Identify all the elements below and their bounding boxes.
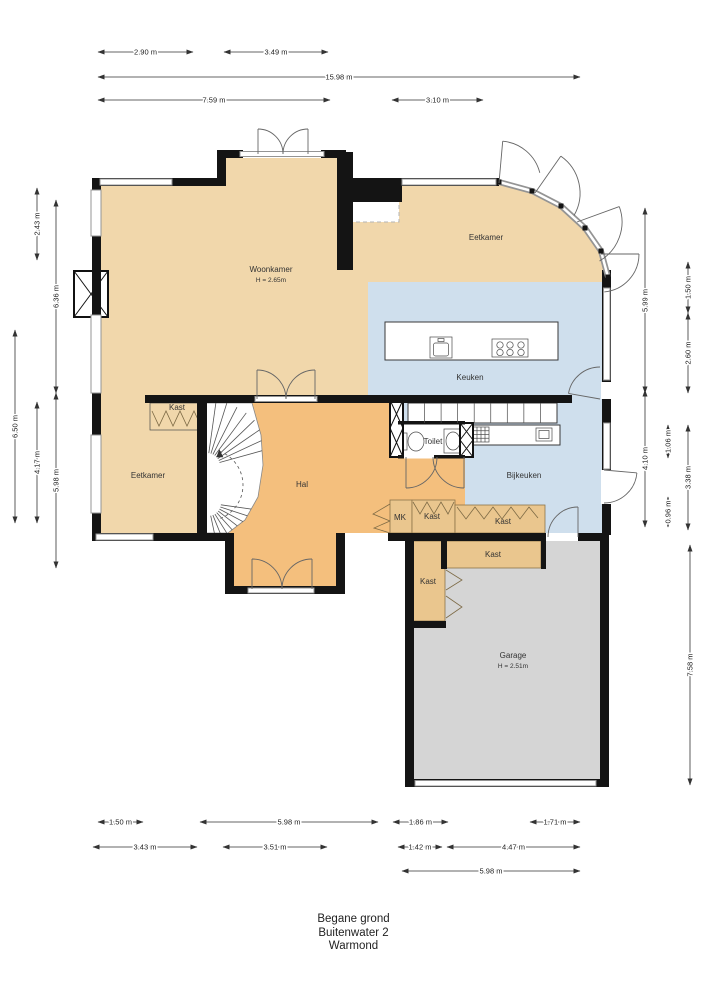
dim-right-1: 4.10 m — [641, 390, 650, 527]
room-label-kast-bijkeuken: Kast — [495, 517, 512, 526]
svg-text:7.58 m: 7.58 m — [686, 654, 695, 677]
svg-text:5.98 m: 5.98 m — [52, 469, 61, 492]
dim-bottom-0: 1.50 m — [98, 818, 143, 827]
room-label-eetkamer-boven: Eetkamer — [469, 233, 504, 242]
dim-bottom-1: 5.98 m — [200, 818, 378, 827]
svg-text:Garage: Garage — [500, 651, 527, 660]
duct-left — [390, 400, 403, 457]
dim-bottom-6: 1.42 m — [398, 843, 442, 852]
dim-bottom-4: 3.43 m — [93, 843, 197, 852]
room-label-kast-eetkamer: Kast — [169, 403, 186, 412]
dim-right-0: 5.99 m — [641, 208, 650, 393]
svg-text:3.43 m: 3.43 m — [134, 843, 157, 852]
dim-right-3: 0.96 m — [664, 497, 673, 527]
dim-bottom-7: 4.47 m — [447, 843, 580, 852]
dim-right-4: 1.50 m — [684, 262, 693, 313]
dim-left-4: 5.98 m — [52, 393, 61, 568]
room-label-toilet: Toilet — [424, 437, 443, 446]
svg-text:H = 2.51m: H = 2.51m — [498, 663, 528, 670]
dim-top-4: 3.10 m — [392, 96, 483, 105]
door-arc-11 — [499, 141, 540, 183]
svg-text:1.50 m: 1.50 m — [684, 276, 693, 299]
room-label-kast-garage-hoog: Kast — [420, 577, 437, 586]
niche-dashed — [347, 201, 399, 222]
dim-top-2: 15.98 m — [98, 73, 580, 82]
svg-text:Toilet: Toilet — [424, 437, 443, 446]
dim-left-2: 6.50 m — [11, 330, 20, 523]
svg-text:1.71 m: 1.71 m — [544, 818, 567, 827]
dim-left-1: 6.36 m — [52, 200, 61, 393]
title-city: Warmond — [0, 940, 707, 954]
svg-text:2.43 m: 2.43 m — [33, 213, 42, 236]
svg-text:2.90 m: 2.90 m — [134, 48, 157, 57]
dim-right-2: 1.06 m — [664, 425, 673, 458]
svg-text:4.47 m: 4.47 m — [502, 843, 525, 852]
door-arc-1 — [283, 129, 308, 154]
dim-top-0: 2.90 m — [98, 48, 193, 57]
svg-text:Kast: Kast — [485, 550, 502, 559]
svg-text:2.60 m: 2.60 m — [684, 342, 693, 365]
dim-bottom-8: 5.98 m — [402, 867, 580, 876]
svg-text:6.50 m: 6.50 m — [11, 415, 20, 438]
room-label-kast-hal: Kast — [424, 512, 441, 521]
svg-text:Keuken: Keuken — [456, 373, 483, 382]
svg-text:1.50 m: 1.50 m — [109, 818, 132, 827]
floorplan-canvas: 2.90 m3.49 m15.98 m7.59 m3.10 m1.50 m5.9… — [0, 0, 707, 1000]
room-label-kast-garage-breed: Kast — [485, 550, 502, 559]
dim-bottom-2: 1.86 m — [393, 818, 448, 827]
dim-left-3: 4.17 m — [33, 402, 42, 523]
room-label-keuken: Keuken — [456, 373, 483, 382]
svg-text:6.36 m: 6.36 m — [52, 285, 61, 308]
svg-text:Kast: Kast — [169, 403, 186, 412]
svg-text:0.96 m: 0.96 m — [664, 501, 673, 524]
title-block: Begane grond Buitenwater 2 Warmond — [0, 913, 707, 954]
svg-text:3.10 m: 3.10 m — [426, 96, 449, 105]
svg-text:1.86 m: 1.86 m — [409, 818, 432, 827]
svg-text:Hal: Hal — [296, 480, 308, 489]
room-label-bijkeuken: Bijkeuken — [507, 471, 542, 480]
svg-text:Bijkeuken: Bijkeuken — [507, 471, 542, 480]
svg-text:4.10 m: 4.10 m — [641, 447, 650, 470]
title-floor: Begane grond — [0, 913, 707, 927]
svg-text:15.98 m: 15.98 m — [325, 73, 352, 82]
svg-text:H = 2.65m: H = 2.65m — [256, 277, 286, 284]
door-arc-0 — [258, 129, 283, 154]
svg-text:5.99 m: 5.99 m — [641, 289, 650, 312]
svg-text:Kast: Kast — [424, 512, 441, 521]
svg-text:1.42 m: 1.42 m — [409, 843, 432, 852]
dim-left-0: 2.43 m — [33, 188, 42, 260]
svg-text:4.17 m: 4.17 m — [33, 451, 42, 474]
room-label-hal: Hal — [296, 480, 308, 489]
svg-text:Eetkamer: Eetkamer — [131, 471, 166, 480]
svg-text:5.98 m: 5.98 m — [278, 818, 301, 827]
room-label-eetkamer-links: Eetkamer — [131, 471, 166, 480]
svg-text:Eetkamer: Eetkamer — [469, 233, 504, 242]
floorplan-page: { "meta": { "title_lines": ["Begane gron… — [0, 0, 707, 1000]
svg-text:3.49 m: 3.49 m — [265, 48, 288, 57]
svg-text:Kast: Kast — [495, 517, 512, 526]
svg-text:Woonkamer: Woonkamer — [250, 265, 293, 274]
svg-text:5.98 m: 5.98 m — [480, 867, 503, 876]
svg-text:7.59 m: 7.59 m — [203, 96, 226, 105]
svg-text:1.06 m: 1.06 m — [664, 430, 673, 453]
room-label-mk: MK — [394, 513, 407, 522]
bijkeuken-counter — [465, 425, 560, 445]
counter-row — [408, 403, 557, 423]
dim-bottom-5: 3.51 m — [223, 843, 327, 852]
kitchen-island — [385, 322, 558, 360]
svg-text:3.38 m: 3.38 m — [684, 466, 693, 489]
svg-text:MK: MK — [394, 513, 407, 522]
dim-right-7: 7.58 m — [686, 545, 695, 785]
dim-right-6: 3.38 m — [684, 425, 693, 530]
svg-text:Kast: Kast — [420, 577, 437, 586]
duct-right — [460, 423, 473, 457]
dim-top-3: 7.59 m — [98, 96, 330, 105]
dim-right-5: 2.60 m — [684, 313, 693, 393]
chimney-box — [74, 271, 108, 317]
dim-top-1: 3.49 m — [224, 48, 328, 57]
title-address: Buitenwater 2 — [0, 927, 707, 941]
svg-text:3.51 m: 3.51 m — [264, 843, 287, 852]
dim-bottom-3: 1.71 m — [530, 818, 580, 827]
